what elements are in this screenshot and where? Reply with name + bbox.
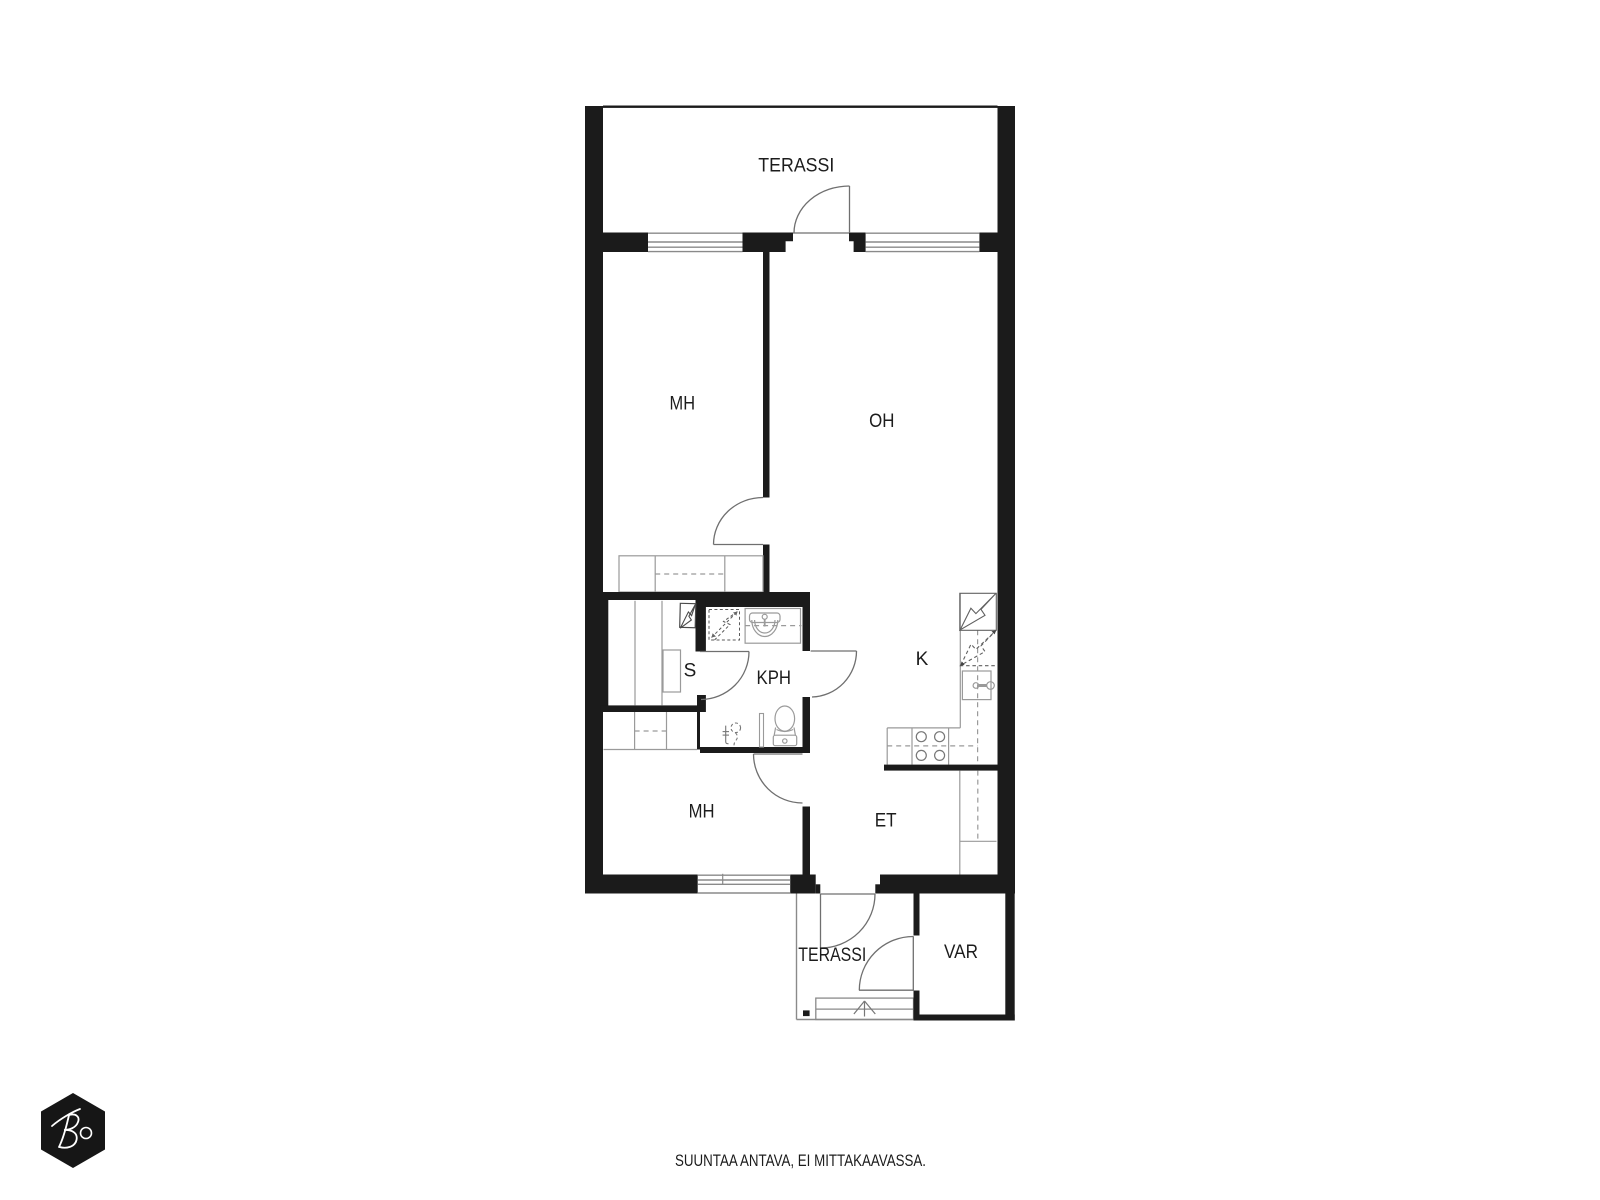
svg-text:VAR: VAR xyxy=(944,942,978,963)
svg-text:S: S xyxy=(684,661,697,682)
svg-text:KPH: KPH xyxy=(757,668,792,689)
svg-text:TERASSI: TERASSI xyxy=(758,156,834,177)
svg-text:K: K xyxy=(916,649,929,670)
svg-text:OH: OH xyxy=(869,411,894,432)
svg-text:ET: ET xyxy=(875,810,897,831)
svg-text:TERASSI: TERASSI xyxy=(798,945,866,966)
svg-text:SUUNTAA ANTAVA, EI MITTAKAAVAS: SUUNTAA ANTAVA, EI MITTAKAAVASSA. xyxy=(675,1152,926,1170)
svg-text:MH: MH xyxy=(670,394,696,415)
svg-text:MH: MH xyxy=(689,802,715,823)
